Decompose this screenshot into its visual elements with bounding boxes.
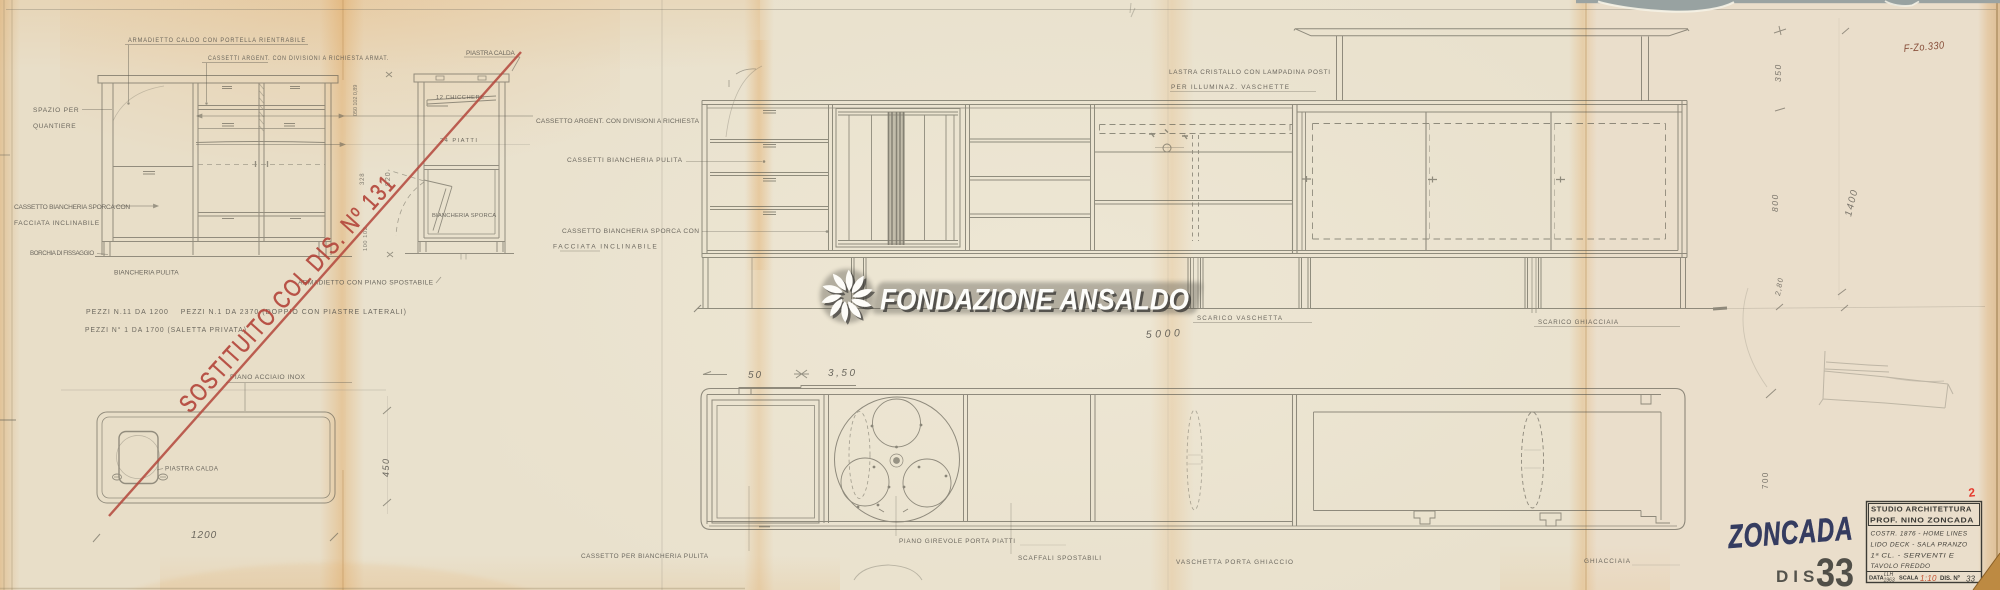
svg-text:BIANCHERIA SPORCA: BIANCHERIA SPORCA [432,213,497,219]
svg-text:PROF. NINO ZONCADA: PROF. NINO ZONCADA [1870,516,1974,525]
svg-text:800: 800 [1770,193,1780,212]
svg-text:350: 350 [1773,63,1783,82]
svg-text:1:10: 1:10 [1920,574,1937,583]
svg-text:DIS: DIS [1776,567,1819,586]
svg-text:BIANCHERIA PULITA: BIANCHERIA PULITA [114,270,180,277]
svg-text:33: 33 [1966,575,1975,584]
svg-text:450: 450 [381,457,391,477]
svg-text:FONDAZIONE ANSALDO: FONDAZIONE ANSALDO [880,284,1189,317]
svg-text:1200: 1200 [191,530,218,541]
svg-text:CASSETTO PER BIANCHERIA PULITA: CASSETTO PER BIANCHERIA PULITA [581,553,709,560]
svg-text:50: 50 [748,370,763,381]
svg-text:CASSETTI BIANCHERIA PULITA: CASSETTI BIANCHERIA PULITA [567,157,683,164]
svg-text:CASSETTO BIANCHERIA SPORCA CON: CASSETTO BIANCHERIA SPORCA CON [562,228,700,235]
svg-text:FACCIATA INCLINABILE: FACCIATA INCLINABILE [553,244,658,251]
svg-text:LASTRA CRISTALLO CON LAMPADINA: LASTRA CRISTALLO CON LAMPADINA POSTI [1169,69,1331,76]
svg-text:FACCIATA INCLINABILE: FACCIATA INCLINABILE [14,220,100,227]
svg-text:GHIACCIAIA: GHIACCIAIA [1584,558,1631,565]
svg-text:VASCHETTA PORTA GHIACCIO: VASCHETTA PORTA GHIACCIO [1176,559,1294,566]
svg-text:328: 328 [360,173,366,185]
svg-text:TAVOLO FREDDO: TAVOLO FREDDO [1871,563,1931,570]
svg-text:DATA: DATA [1869,576,1884,582]
svg-text:3,50: 3,50 [828,368,858,379]
svg-text:700: 700 [1761,471,1770,489]
svg-text:CASSETTI ARGENT. CON DIVISIONI: CASSETTI ARGENT. CON DIVISIONI A RICHIES… [208,55,389,62]
svg-text:PIASTRA CALDA: PIASTRA CALDA [466,50,516,57]
svg-text:SCARICO VASCHETTA: SCARICO VASCHETTA [1197,315,1283,322]
svg-text:SPAZIO PER: SPAZIO PER [33,107,80,114]
svg-text:STUDIO ARCHITETTURA: STUDIO ARCHITETTURA [1871,505,1972,514]
svg-text:PIANO ACCIAIO INOX: PIANO ACCIAIO INOX [230,374,306,381]
svg-text:050 102 0,89: 050 102 0,89 [353,84,359,116]
svg-text:33: 33 [1816,551,1854,590]
svg-text:SCARICO GHIACCIAIA: SCARICO GHIACCIAIA [1538,319,1619,326]
svg-text:CASSETTO ARGENT. CON DIVISIONI: CASSETTO ARGENT. CON DIVISIONI A RICHIES… [536,118,700,125]
svg-text:SCAFFALI SPOSTABILI: SCAFFALI SPOSTABILI [1018,555,1102,562]
svg-text:1963: 1963 [1884,578,1895,584]
svg-text:PIASTRA CALDA: PIASTRA CALDA [165,466,219,473]
svg-text:24 PIATTI: 24 PIATTI [440,138,478,144]
svg-text:PEZZI N.11 DA 1200 PEZZI N.: PEZZI N.11 DA 1200 PEZZI N.1 DA 2370 (DO… [86,307,407,316]
svg-text:LIDO DECK - SALA PRANZO: LIDO DECK - SALA PRANZO [1871,542,1968,549]
svg-text:DIS. Nº: DIS. Nº [1940,576,1961,582]
svg-text:PEZZI N° 1 DA 1700 (SALETTA PR: PEZZI N° 1 DA 1700 (SALETTA PRIVATA) [85,325,247,334]
svg-text:COSTR. 1876 - HOME LINES: COSTR. 1876 - HOME LINES [1871,531,1968,538]
svg-text:ARMADIETTO CALDO CON PORTELLA: ARMADIETTO CALDO CON PORTELLA RIENTRABIL… [128,37,306,44]
svg-text:BORCHIA DI FISSAGGIO: BORCHIA DI FISSAGGIO [30,250,95,257]
svg-text:PER ILLUMINAZ. VASCHETTE: PER ILLUMINAZ. VASCHETTE [1171,84,1290,91]
svg-text:1ª CL. - SERVENTI E: 1ª CL. - SERVENTI E [1871,553,1955,560]
svg-text:QUANTIERE: QUANTIERE [33,123,77,130]
svg-text:CASSETTO BIANCHERIA SPORCA CON: CASSETTO BIANCHERIA SPORCA CON [14,204,131,211]
svg-text:SCALA: SCALA [1899,576,1918,582]
svg-text:PIANO GIREVOLE PORTA PIATTI: PIANO GIREVOLE PORTA PIATTI [899,538,1016,545]
